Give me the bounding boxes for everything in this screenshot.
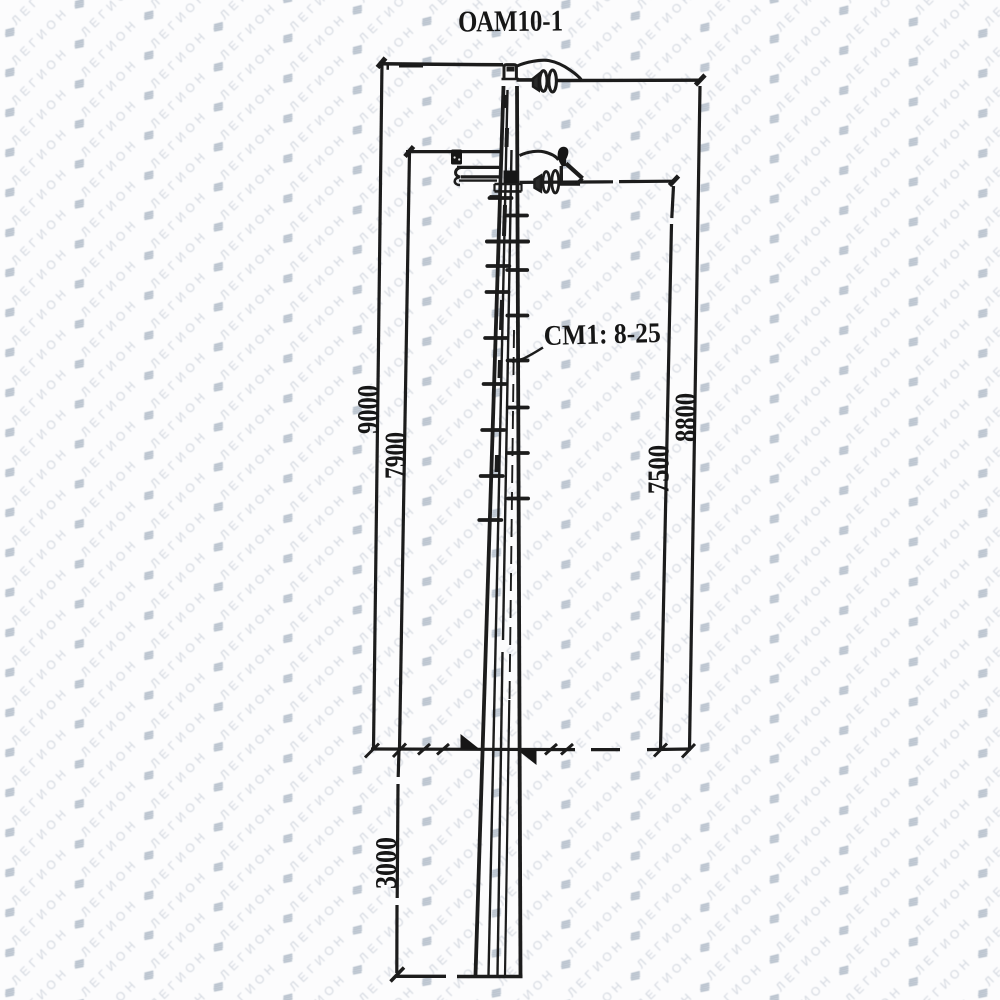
svg-text:9000: 9000 <box>350 385 385 434</box>
svg-text:3000: 3000 <box>368 837 403 889</box>
svg-text:7900: 7900 <box>378 432 413 479</box>
svg-text:ОАМ10-1: ОАМ10-1 <box>458 4 563 38</box>
svg-text:8800: 8800 <box>668 393 703 442</box>
svg-text:СМ1: 8-25: СМ1: 8-25 <box>543 318 661 352</box>
svg-text:7500: 7500 <box>641 445 676 494</box>
